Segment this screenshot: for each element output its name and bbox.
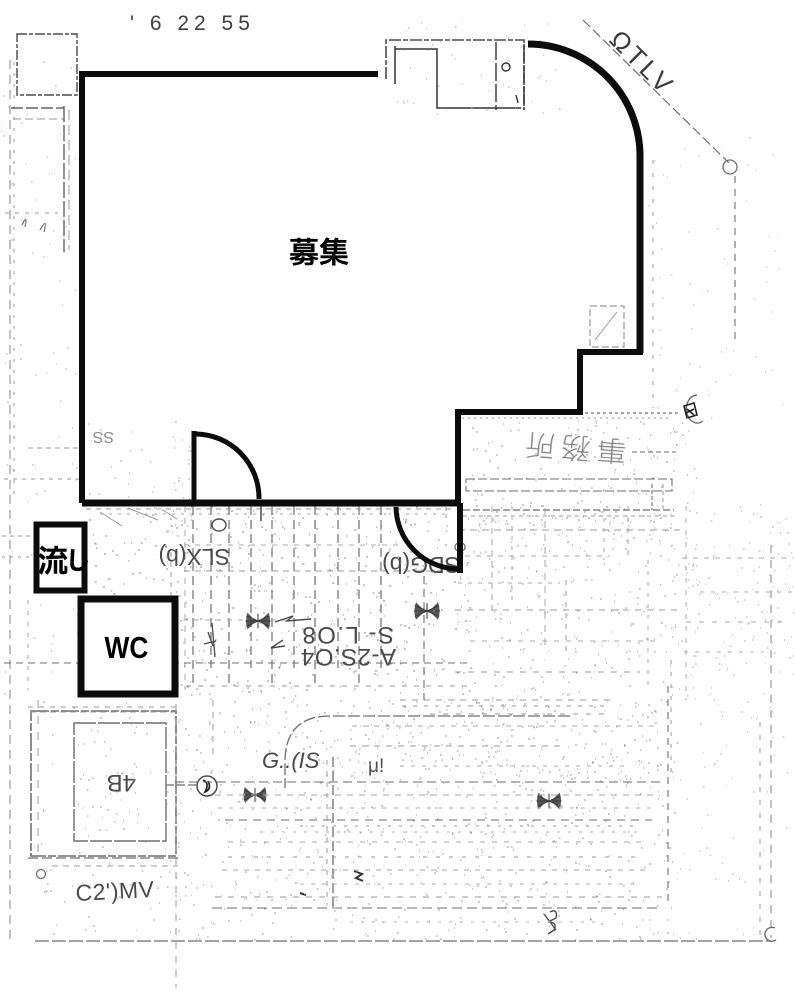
svg-text:WC: WC [105,631,149,665]
svg-text:μ!: μ! [368,756,384,777]
svg-text:' 6 22 55: ' 6 22 55 [130,12,255,35]
svg-text:C2')MV: C2')MV [75,876,155,906]
svg-text:SS: SS [93,428,114,445]
svg-text:4B: 4B [107,769,136,796]
svg-text:G..(IS: G..(IS [262,748,320,773]
svg-text:A-2S.O4: A-2S.O4 [300,643,396,670]
svg-text:SLX(b): SLX(b) [158,544,230,570]
